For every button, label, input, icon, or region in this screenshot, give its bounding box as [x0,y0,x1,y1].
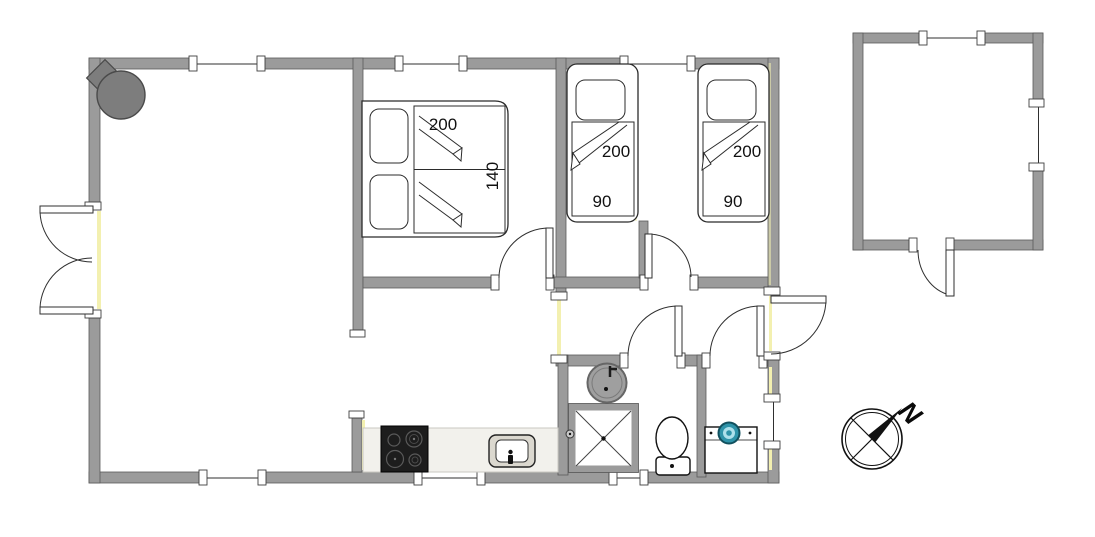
wall-kitchen-stub [352,418,362,472]
annexe-window-north [919,31,985,45]
wall-bedroom-south-1 [363,277,498,288]
pillow [576,80,625,120]
door-swing-arc [918,250,950,295]
compass-rose-icon: N [842,395,928,469]
shower-drain [601,436,605,440]
sink-faucet [508,455,513,464]
window-double-bedroom-north [395,56,467,71]
wall-between-bedrooms [556,58,566,288]
door-double-bedroom [491,228,554,290]
pillow [707,80,756,120]
floor-plan-page: 200 140 200 90 200 90 [0,0,1095,537]
annexe-door [909,238,954,296]
pillow [370,175,408,229]
shower-tap-dot [569,433,571,435]
door-twin-bedroom [640,234,698,290]
door-swing-arc [40,212,92,262]
single-bed-width-label: 90 [593,192,612,211]
double-bed-length-label: 200 [429,115,457,134]
main-building: 200 140 200 90 200 90 [40,56,826,485]
door-leaf [771,296,826,303]
single-bed-length-label: 200 [602,142,630,161]
burner-dot [394,458,396,460]
annexe-window-east [1029,99,1044,171]
cooktop-icon [381,426,428,472]
single-bed-width-label: 90 [724,192,743,211]
door-bathroom [620,306,685,368]
toilet-button [670,464,674,468]
door-leaf [946,250,954,296]
entrance-door-east [764,287,826,360]
wall-end-cap [349,411,364,418]
window-living-north [189,56,265,71]
door-swing-arc [628,306,678,356]
single-bed-length-label: 200 [733,142,761,161]
washbasin-icon [588,364,627,403]
kitchen-sink-icon [489,435,535,467]
annexe-building [853,31,1044,296]
compass-north-label: N [892,395,927,430]
door-utility [702,306,767,368]
wall-bedroom-south-2 [547,277,648,288]
door-swing-arc [40,258,92,308]
floor-plan-drawing: 200 140 200 90 200 90 [0,0,1095,537]
stove-body [97,71,145,119]
sink-faucet-dot [508,450,512,454]
burner-dot [413,438,415,440]
washer-knob [710,432,713,435]
window-living-south [199,470,266,485]
door-leaf [757,306,764,356]
double-bed-icon: 200 140 [362,101,508,237]
passage-hall-kitchen [551,292,567,363]
kitchen [363,426,558,472]
window-utility-east [764,394,780,449]
cooktop-body [381,426,428,472]
washing-machine-icon [705,423,757,474]
door-leaf [40,206,93,213]
pillow [370,109,408,163]
french-doors-west [40,202,101,318]
double-bed-width-label: 140 [483,162,502,190]
shower-icon [566,404,639,473]
door-leaf [645,234,652,278]
annexe-wall-west [853,33,863,250]
door-leaf [675,306,682,356]
wall-end-cap [350,330,365,337]
bathroom [566,364,690,476]
wall-bathroom-west [558,355,568,475]
basin-drain [604,387,608,391]
single-bed-icon-right: 200 90 [698,64,769,222]
washer-knob [749,432,752,435]
single-bed-icon-left: 200 90 [567,64,638,222]
washer-lid-center [726,430,732,436]
basin-outer [588,364,627,403]
door-swing-arc [648,234,691,277]
door-leaf [40,307,93,314]
toilet-bowl [656,417,688,459]
door-swing-arc [499,228,549,278]
door-leaf [546,228,553,278]
wall-bedroom-south-3 [691,277,768,288]
toilet-icon [656,417,690,475]
door-swing-arc [710,306,760,356]
